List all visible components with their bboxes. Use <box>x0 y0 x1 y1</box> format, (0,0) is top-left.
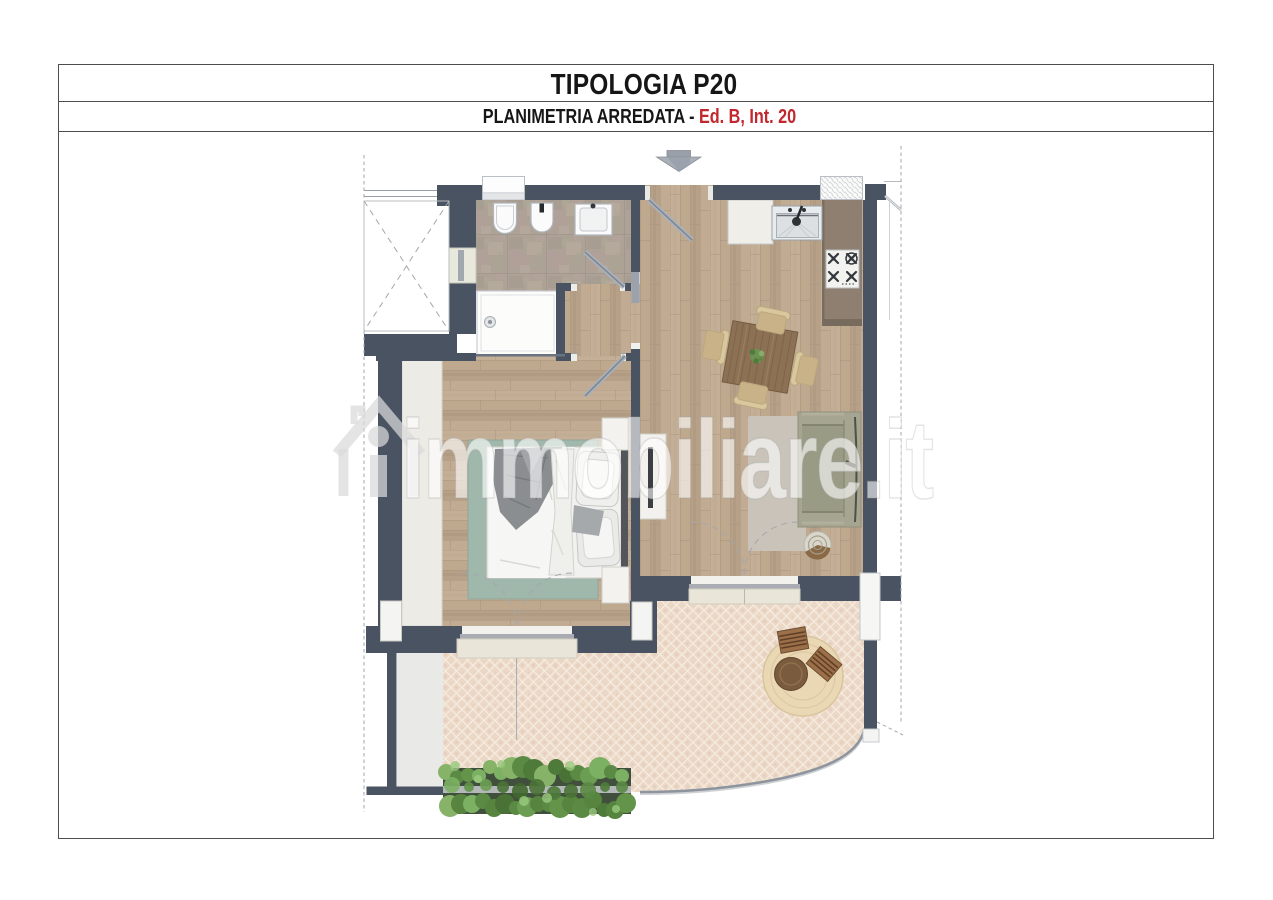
svg-text:PLANIMETRIA ARREDATA - Ed. B,: PLANIMETRIA ARREDATA - Ed. B, Int. 20 <box>483 104 796 127</box>
svg-text:TIPOLOGIA P20: TIPOLOGIA P20 <box>551 68 738 100</box>
svg-text:immobiliare.it: immobiliare.it <box>401 398 933 522</box>
